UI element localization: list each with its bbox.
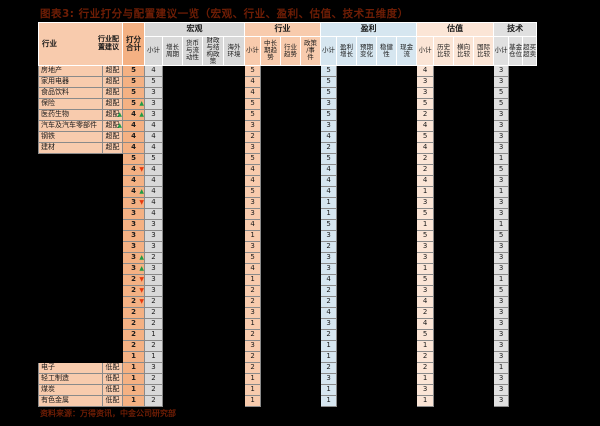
redacted-cell [337, 351, 357, 362]
table-row: 3▲34313 [39, 263, 537, 274]
subtotal-技术: 5 [494, 87, 509, 98]
redacted-cell [203, 87, 224, 98]
total-score: 2 [123, 329, 145, 340]
group-header-row: 行业 行业配 置建议 打分 合计 宏观行业盈利估值技术 [39, 23, 537, 37]
redacted-cell [183, 76, 203, 87]
redacted-cell [434, 142, 454, 153]
subtotal-宏观: 2 [145, 252, 163, 263]
redacted-cell [397, 285, 417, 296]
subtotal-宏观: 2 [145, 395, 163, 406]
subtotal-宏观: 5 [145, 76, 163, 87]
redacted-cell [301, 274, 321, 285]
redacted-cell [377, 274, 397, 285]
redacted-cell [183, 285, 203, 296]
subtotal-估值: 2 [417, 109, 434, 120]
redacted-cell [163, 285, 183, 296]
redacted-cell [183, 197, 203, 208]
redacted-cell [224, 142, 245, 153]
redacted-cell [281, 274, 301, 285]
redacted-cell [224, 263, 245, 274]
redacted-cell [301, 318, 321, 329]
subtotal-宏观: 5 [145, 153, 163, 164]
redacted-cell [509, 98, 523, 109]
table-row: 有色金属低配121113 [39, 395, 537, 406]
subtotal-估值: 3 [417, 384, 434, 395]
advice-redacted [103, 274, 123, 285]
up-arrow-icon: ▲ [117, 123, 122, 129]
table-row: 444443 [39, 175, 537, 186]
redacted-cell [183, 351, 203, 362]
industry-name-redacted [39, 153, 103, 164]
redacted-cell [454, 131, 474, 142]
redacted-cell [261, 76, 281, 87]
redacted-cell [434, 87, 454, 98]
subtotal-盈利: 2 [321, 285, 337, 296]
redacted-cell [474, 318, 494, 329]
redacted-cell [474, 263, 494, 274]
redacted-cell [377, 340, 397, 351]
redacted-cell [397, 87, 417, 98]
subtotal-宏观: 2 [145, 373, 163, 384]
subtotal-技术: 3 [494, 241, 509, 252]
redacted-cell [163, 186, 183, 197]
redacted-cell [377, 109, 397, 120]
subtotal-盈利: 2 [321, 329, 337, 340]
redacted-cell [397, 263, 417, 274]
total-score-header: 打分 合计 [123, 23, 145, 66]
redacted-cell [377, 384, 397, 395]
redacted-cell [377, 252, 397, 263]
redacted-cell [523, 296, 537, 307]
redacted-cell [261, 373, 281, 384]
redacted-cell [454, 186, 474, 197]
table-row: 2▼32235 [39, 285, 537, 296]
redacted-cell [509, 197, 523, 208]
redacted-cell [224, 329, 245, 340]
redacted-cell [357, 153, 377, 164]
redacted-cell [474, 274, 494, 285]
total-score: 3 [123, 208, 145, 219]
redacted-cell [163, 120, 183, 131]
redacted-cell [357, 76, 377, 87]
industry-name: 医药生物 [39, 109, 103, 120]
redacted-cell [523, 373, 537, 384]
redacted-cell [337, 65, 357, 76]
redacted-cell [261, 65, 281, 76]
redacted-cell [454, 98, 474, 109]
subtotal-估值: 5 [417, 208, 434, 219]
redacted-cell [509, 318, 523, 329]
redacted-cell [337, 384, 357, 395]
redacted-cell [377, 142, 397, 153]
redacted-cell [301, 65, 321, 76]
redacted-cell [509, 241, 523, 252]
redacted-cell [523, 219, 537, 230]
redacted-cell [261, 120, 281, 131]
redacted-cell [203, 175, 224, 186]
sub-header: 盈利 增长 [337, 37, 357, 66]
redacted-cell [357, 208, 377, 219]
subtotal-宏观: 4 [145, 197, 163, 208]
subtotal-技术: 3 [494, 208, 509, 219]
redacted-cell [337, 142, 357, 153]
redacted-cell [163, 175, 183, 186]
redacted-cell [261, 285, 281, 296]
redacted-cell [183, 153, 203, 164]
redacted-cell [434, 175, 454, 186]
table-row: 333233 [39, 241, 537, 252]
redacted-cell [434, 274, 454, 285]
redacted-cell [183, 263, 203, 274]
table-row: 房地产超配545543 [39, 65, 537, 76]
redacted-cell [454, 164, 474, 175]
total-score: 4▲ [123, 109, 145, 120]
redacted-cell [474, 142, 494, 153]
redacted-cell [203, 395, 224, 406]
industry-name: 钢铁 [39, 131, 103, 142]
subtotal-行业: 1 [245, 384, 261, 395]
sub-header: 货币 与流 动性 [183, 37, 203, 66]
subtotal-盈利: 3 [321, 318, 337, 329]
redacted-cell [203, 153, 224, 164]
advice-redacted [103, 351, 123, 362]
redacted-cell [261, 197, 281, 208]
subtotal-行业: 4 [245, 87, 261, 98]
redacted-cell [183, 329, 203, 340]
table-head: 行业 行业配 置建议 打分 合计 宏观行业盈利估值技术 小计增长 周期货币 与流… [39, 23, 537, 66]
subtotal-行业: 5 [245, 109, 261, 120]
subtotal-宏观: 3 [145, 219, 163, 230]
subtotal-盈利: 4 [321, 186, 337, 197]
redacted-cell [509, 329, 523, 340]
redacted-cell [474, 186, 494, 197]
redacted-cell [474, 76, 494, 87]
redacted-cell [203, 230, 224, 241]
advice-redacted [103, 153, 123, 164]
redacted-cell [301, 373, 321, 384]
redacted-cell [474, 329, 494, 340]
redacted-cell [474, 208, 494, 219]
subtotal-行业: 3 [245, 307, 261, 318]
subtotal-估值: 2 [417, 351, 434, 362]
advice-redacted [103, 329, 123, 340]
subtotal-行业: 4 [245, 175, 261, 186]
redacted-cell [357, 65, 377, 76]
redacted-cell [454, 351, 474, 362]
industry-name-redacted [39, 318, 103, 329]
redacted-cell [454, 329, 474, 340]
subtotal-行业: 1 [245, 274, 261, 285]
redacted-cell [523, 164, 537, 175]
subtotal-行业: 3 [245, 197, 261, 208]
subtotal-盈利: 1 [321, 395, 337, 406]
redacted-cell [261, 351, 281, 362]
group-header-2: 行业 [245, 23, 321, 37]
redacted-cell [454, 65, 474, 76]
redacted-cell [434, 241, 454, 252]
redacted-cell [377, 307, 397, 318]
subtotal-盈利: 5 [321, 153, 337, 164]
subtotal-行业: 2 [245, 329, 261, 340]
redacted-cell [357, 263, 377, 274]
total-score: 5▲ [123, 98, 145, 109]
redacted-cell [377, 329, 397, 340]
table-row: 2▼22243 [39, 296, 537, 307]
redacted-cell [454, 340, 474, 351]
redacted-cell [301, 197, 321, 208]
total-score: 1 [123, 373, 145, 384]
redacted-cell [377, 65, 397, 76]
table-row: 家用电器超配554533 [39, 76, 537, 87]
redacted-cell [377, 285, 397, 296]
table-row: 钢铁超配442453 [39, 131, 537, 142]
subtotal-盈利: 1 [321, 208, 337, 219]
redacted-cell [224, 175, 245, 186]
redacted-cell [434, 109, 454, 120]
redacted-cell [377, 208, 397, 219]
subtotal-技术: 1 [494, 153, 509, 164]
redacted-cell [509, 153, 523, 164]
redacted-cell [281, 340, 301, 351]
down-arrow-icon: ▼ [139, 288, 144, 294]
redacted-cell [281, 186, 301, 197]
redacted-cell [357, 351, 377, 362]
redacted-cell [261, 175, 281, 186]
industry-name: 轻工制造 [39, 373, 103, 384]
redacted-cell [474, 285, 494, 296]
redacted-cell [281, 175, 301, 186]
redacted-cell [474, 340, 494, 351]
subtotal-技术: 3 [494, 340, 509, 351]
redacted-cell [224, 230, 245, 241]
redacted-cell [454, 296, 474, 307]
redacted-cell [523, 395, 537, 406]
up-arrow-icon: ▲ [139, 266, 144, 272]
redacted-cell [454, 153, 474, 164]
table-row: 2▼31451 [39, 274, 537, 285]
advice-redacted [103, 340, 123, 351]
redacted-cell [281, 395, 301, 406]
redacted-cell [377, 362, 397, 373]
subtotal-技术: 1 [494, 186, 509, 197]
total-score: 4 [123, 142, 145, 153]
subtotal-盈利: 2 [321, 296, 337, 307]
subtotal-盈利: 4 [321, 175, 337, 186]
redacted-cell [454, 208, 474, 219]
redacted-cell [224, 351, 245, 362]
redacted-cell [509, 186, 523, 197]
redacted-cell [183, 65, 203, 76]
redacted-cell [454, 241, 474, 252]
allocation-advice: 超配 [103, 76, 123, 87]
subtotal-技术: 3 [494, 318, 509, 329]
redacted-cell [357, 219, 377, 230]
industry-name-redacted [39, 340, 103, 351]
subtotal-行业: 5 [245, 98, 261, 109]
redacted-cell [397, 109, 417, 120]
redacted-cell [163, 142, 183, 153]
redacted-cell [357, 307, 377, 318]
redacted-cell [337, 362, 357, 373]
table-row: 555521 [39, 153, 537, 164]
redacted-cell [474, 395, 494, 406]
table-row: 331355 [39, 230, 537, 241]
redacted-cell [337, 109, 357, 120]
redacted-cell [203, 131, 224, 142]
industry-score-table: 行业 行业配 置建议 打分 合计 宏观行业盈利估值技术 小计增长 周期货币 与流… [38, 22, 537, 407]
subtotal-估值: 5 [417, 230, 434, 241]
redacted-cell [434, 296, 454, 307]
redacted-cell [434, 318, 454, 329]
industry-name: 建材 [39, 142, 103, 153]
redacted-cell [377, 197, 397, 208]
down-arrow-icon: ▼ [139, 299, 144, 305]
redacted-cell [523, 109, 537, 120]
subtotal-技术: 3 [494, 65, 509, 76]
industry-name-redacted [39, 307, 103, 318]
allocation-advice: 超配 [103, 131, 123, 142]
redacted-cell [454, 384, 474, 395]
redacted-cell [357, 164, 377, 175]
redacted-cell [261, 186, 281, 197]
subtotal-估值: 4 [417, 142, 434, 153]
redacted-cell [163, 98, 183, 109]
redacted-cell [183, 219, 203, 230]
group-header-4: 估值 [417, 23, 494, 37]
total-score: 1 [123, 395, 145, 406]
subtotal-估值: 1 [417, 373, 434, 384]
table-row: 医药生物超配▲4▲35523 [39, 109, 537, 120]
redacted-cell [301, 186, 321, 197]
sub-header: 财政 与结 构政 策 [203, 37, 224, 66]
redacted-cell [454, 230, 474, 241]
redacted-cell [261, 340, 281, 351]
redacted-cell [523, 186, 537, 197]
industry-name-redacted [39, 175, 103, 186]
redacted-cell [203, 340, 224, 351]
industry-name: 有色金属 [39, 395, 103, 406]
redacted-cell [203, 186, 224, 197]
up-arrow-icon: ▲ [139, 189, 144, 195]
redacted-cell [301, 351, 321, 362]
allocation-advice: 低配 [103, 384, 123, 395]
redacted-cell [224, 362, 245, 373]
subtotal-盈利: 1 [321, 351, 337, 362]
subtotal-盈利: 4 [321, 307, 337, 318]
total-score: 4 [123, 175, 145, 186]
total-score: 4▲ [123, 186, 145, 197]
redacted-cell [474, 252, 494, 263]
subtotal-宏观: 3 [145, 241, 163, 252]
redacted-cell [163, 340, 183, 351]
redacted-cell [509, 131, 523, 142]
sub-header: 政策 /事 件 [301, 37, 321, 66]
redacted-cell [281, 252, 301, 263]
advice-redacted [103, 219, 123, 230]
redacted-cell [357, 373, 377, 384]
redacted-cell [281, 109, 301, 120]
redacted-cell [203, 362, 224, 373]
industry-name: 房地产 [39, 65, 103, 76]
subtotal-技术: 3 [494, 384, 509, 395]
advice-redacted [103, 263, 123, 274]
redacted-cell [474, 98, 494, 109]
redacted-cell [474, 241, 494, 252]
redacted-cell [203, 120, 224, 131]
subtotal-宏观: 3 [145, 87, 163, 98]
redacted-cell [509, 230, 523, 241]
subtotal-技术: 1 [494, 362, 509, 373]
sub-header: 中长 期趋 势 [261, 37, 281, 66]
redacted-cell [397, 384, 417, 395]
redacted-cell [224, 395, 245, 406]
redacted-cell [337, 153, 357, 164]
subtotal-行业: 3 [245, 340, 261, 351]
group-header-3: 盈利 [321, 23, 417, 37]
redacted-cell [397, 208, 417, 219]
subtotal-宏观: 3 [145, 362, 163, 373]
redacted-cell [203, 197, 224, 208]
redacted-cell [474, 373, 494, 384]
group-header-5: 技术 [494, 23, 537, 37]
up-arrow-icon: ▲ [117, 112, 122, 118]
redacted-cell [337, 307, 357, 318]
up-arrow-icon: ▲ [139, 101, 144, 107]
subtotal-行业: 5 [245, 153, 261, 164]
redacted-cell [377, 318, 397, 329]
total-score: 4 [123, 131, 145, 142]
redacted-cell [203, 263, 224, 274]
redacted-cell [281, 384, 301, 395]
industry-name-redacted [39, 197, 103, 208]
redacted-cell [474, 131, 494, 142]
subtotal-盈利: 1 [321, 384, 337, 395]
redacted-cell [301, 175, 321, 186]
redacted-cell [434, 340, 454, 351]
redacted-cell [224, 340, 245, 351]
redacted-cell [261, 362, 281, 373]
redacted-cell [183, 175, 203, 186]
redacted-cell [397, 131, 417, 142]
redacted-cell [357, 340, 377, 351]
table-row: 建材超配443243 [39, 142, 537, 153]
redacted-cell [301, 296, 321, 307]
redacted-cell [357, 318, 377, 329]
table-row: 223113 [39, 340, 537, 351]
redacted-cell [301, 87, 321, 98]
redacted-cell [509, 252, 523, 263]
redacted-cell [163, 230, 183, 241]
redacted-cell [397, 219, 417, 230]
table-row: 221343 [39, 318, 537, 329]
redacted-cell [337, 208, 357, 219]
redacted-cell [203, 76, 224, 87]
redacted-cell [357, 362, 377, 373]
redacted-cell [397, 274, 417, 285]
redacted-cell [434, 131, 454, 142]
redacted-cell [357, 285, 377, 296]
redacted-cell [523, 76, 537, 87]
redacted-cell [261, 153, 281, 164]
redacted-cell [337, 274, 357, 285]
advice-redacted [103, 164, 123, 175]
redacted-cell [357, 131, 377, 142]
redacted-cell [163, 373, 183, 384]
redacted-cell [281, 197, 301, 208]
subtotal-估值: 4 [417, 120, 434, 131]
redacted-cell [281, 87, 301, 98]
redacted-cell [523, 197, 537, 208]
